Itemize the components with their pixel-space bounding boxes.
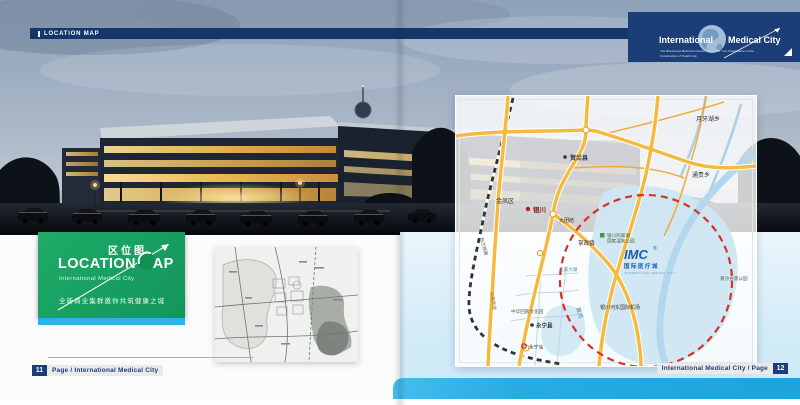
location-map-card: 区位图 LOCATION MAP International Medical C… [38,232,185,318]
header-title: LOCATION MAP [44,31,100,37]
brand-tagline-2: Construction of Health City [660,54,697,58]
map-label-wangjia-lake: 王家大湖 [559,266,578,273]
location-map-panel: 月牙湖乡 贺兰县 通贵乡 金凤区 银川 大团结 掌政镇 银川鸣翠湖 国家湿地公园… [455,95,757,367]
map-label-yinchuan: 银川 [533,205,546,214]
map-label-airport: 银川河东国际机场 [600,304,640,311]
map-label-wetland-2: 国家湿地公园 [607,238,635,245]
page-label-left: Page / International Medical City [47,365,163,376]
map-label-helan: 贺兰县 [569,154,588,162]
map-label-huangsha: 黄沙古渡公园 [720,275,748,282]
brand-logo: International Medical City The Brand-new… [628,12,800,62]
map-label-datuanjie: 大团结 [559,217,574,224]
map-label-tonggui: 通贵乡 [692,171,710,179]
brand-name-right: Medical City [728,35,781,45]
corner-arrow-icon [784,48,792,56]
imc-en: INTERNATIONAL MEDICAL CITY [624,271,675,275]
imc-cn: 国际医疗城 [624,262,659,270]
map-label-zhangzheng: 掌政镇 [578,239,595,247]
mini-city-plan-map [215,247,358,362]
bottom-white-strip [0,399,800,405]
map-label-baolan: 包兰铁路 [478,237,490,257]
map-label-hui-park: 中华回族文化园 [511,308,544,315]
pen-graphic [38,232,185,318]
footer-right: International Medical City / Page 12 [657,363,788,374]
wetland-marker-icon [600,233,605,238]
map-label-yongning-station: 永宁站 [529,344,544,351]
map-label-jinfeng: 金凤区 [496,197,514,205]
bottom-cyan-bar [393,378,800,399]
arrow-icon [774,28,780,33]
mini-map-art [215,247,358,362]
header-tick-icon [38,31,40,37]
imc-reg: ® [653,245,657,252]
footer-left: 11 Page / International Medical City [32,365,163,376]
page-label-right: International Medical City / Page [657,363,773,374]
pen-arrow-icon [161,244,169,251]
brand-name-left: International [659,35,713,45]
brochure-spread: LOCATION MAP International Medical City … [0,0,800,405]
location-map-art: 月牙湖乡 贺兰县 通贵乡 金凤区 银川 大团结 掌政镇 银川鸣翠湖 国家湿地公园… [456,96,756,366]
footer-green-line [48,357,253,358]
card-cyan-strip [38,318,185,325]
brand-band: International Medical City The Brand-new… [628,12,800,62]
map-label-yueyahu: 月牙湖乡 [696,115,720,123]
page-number-left: 11 [32,365,47,376]
map-label-yongning: 永宁县 [535,322,553,330]
imc-abbr: IMC [624,247,648,262]
page-number-right: 12 [773,363,788,374]
